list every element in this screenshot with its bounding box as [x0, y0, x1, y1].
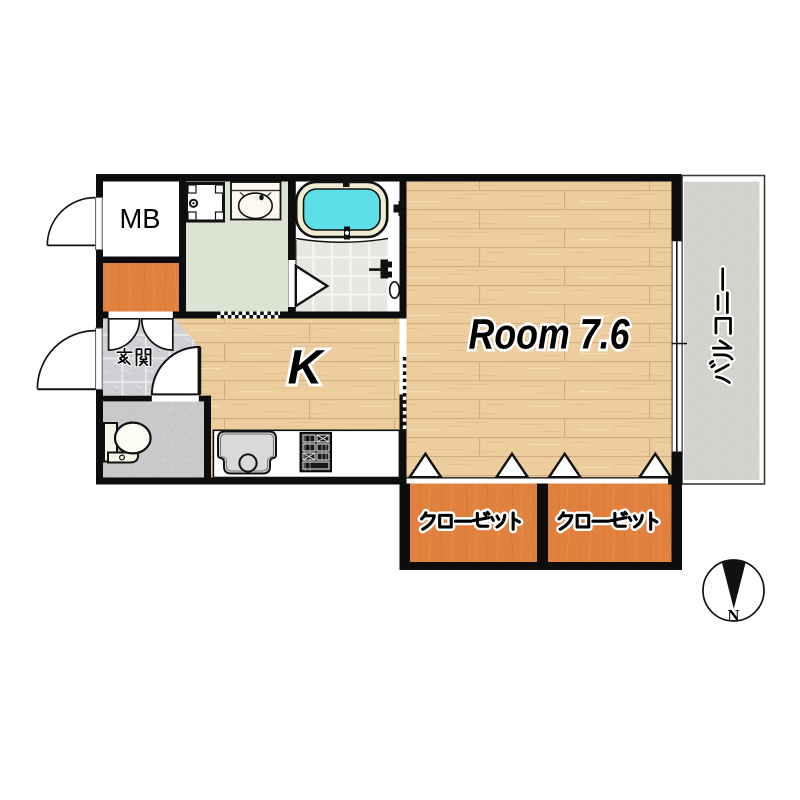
svg-text:K: K — [288, 342, 326, 395]
svg-text:MB: MB — [120, 203, 161, 234]
svg-text:Room 7.6: Room 7.6 — [469, 311, 631, 359]
svg-text:N: N — [728, 606, 740, 625]
